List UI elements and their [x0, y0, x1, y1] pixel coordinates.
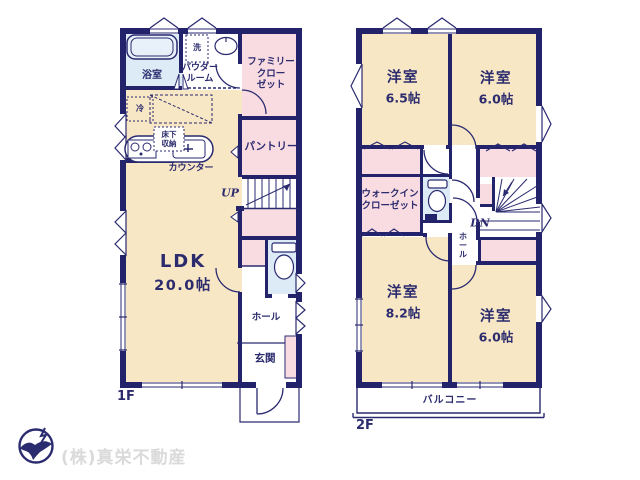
floorplan-canvas: 浴室 洗 パウダー ルーム ファミリー クロー ゼット 冷 床下 収納 カウンタ…: [0, 0, 640, 480]
label-bedroom-se-size: 6.0帖: [479, 329, 514, 344]
label-bedroom-ne-name: 洋室: [480, 71, 512, 89]
floor2-label: 2F: [356, 418, 374, 433]
label-bedroom-ne-size: 6.0帖: [479, 91, 514, 106]
stove-icon: [128, 140, 156, 158]
label-underfloor: 床下 収納: [162, 130, 177, 148]
label-family-closet: ファミリー クロー ゼット: [247, 57, 295, 92]
label-washer: 洗: [193, 43, 201, 53]
label-ldk-size: 20.0帖: [154, 278, 212, 296]
floor1-label: 1F: [117, 389, 135, 404]
label-counter: カウンター: [168, 164, 213, 175]
label-hall-1f: ホール: [252, 312, 281, 324]
label-balcony: バルコニー: [423, 395, 478, 407]
label-stairs-dn: DN: [470, 216, 490, 229]
label-pantry: パントリー: [244, 141, 297, 154]
label-powder-room: パウダー ルーム: [182, 63, 218, 85]
toilet-2f-icon: [428, 180, 447, 212]
label-bedroom-se-name: 洋室: [480, 309, 512, 327]
label-bedroom-nw-name: 洋室: [387, 70, 419, 88]
floorplan-drawing: [0, 0, 640, 480]
company-logo: [20, 428, 53, 463]
label-entrance: 玄関: [255, 353, 276, 366]
label-ldk-name: LDK: [160, 251, 206, 273]
label-hall-2f: ホ ー ル: [459, 233, 467, 259]
floor2-plan: [351, 18, 551, 418]
bathtub-icon: [127, 35, 177, 59]
bird-logo-icon: [20, 428, 53, 463]
toilet-1f-icon: [272, 243, 296, 279]
label-bedroom-nw-size: 6.5帖: [386, 90, 421, 105]
label-bathroom: 浴室: [142, 70, 162, 82]
label-stairs-up: UP: [221, 186, 239, 199]
label-bedroom-sw-size: 8.2帖: [386, 305, 421, 320]
powder-sink-icon: [215, 37, 237, 55]
company-name: (株)真栄不動産: [61, 443, 187, 468]
label-walk-in-closet: ウォークイン クローゼット: [361, 188, 418, 211]
label-fridge: 冷: [136, 104, 144, 114]
label-bedroom-sw-name: 洋室: [387, 285, 419, 303]
